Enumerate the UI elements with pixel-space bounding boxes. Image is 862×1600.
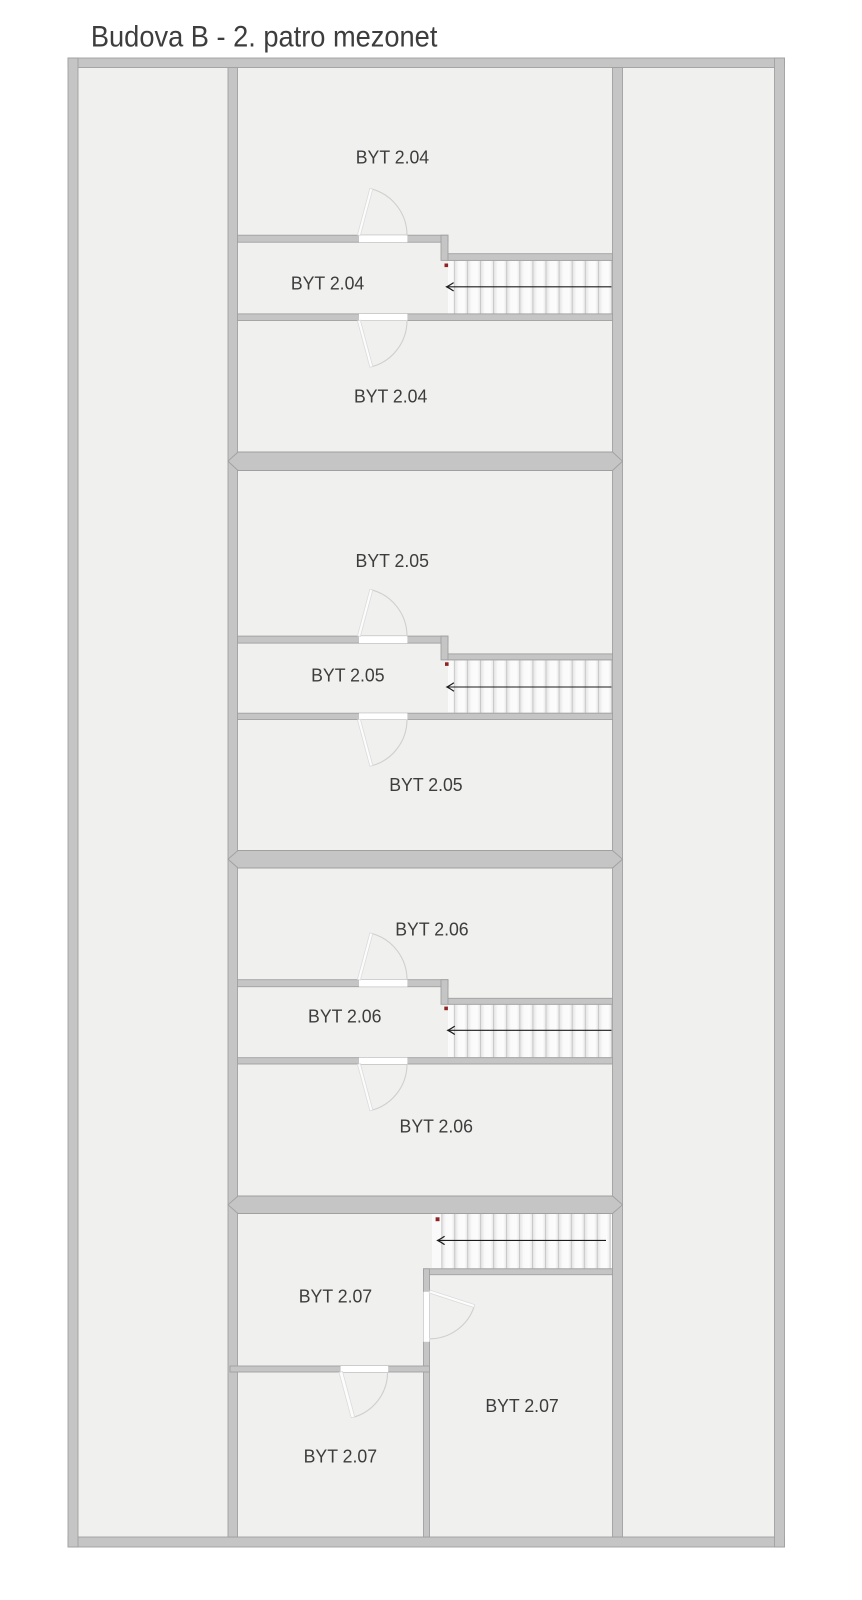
svg-text:BYT 2.04: BYT 2.04 xyxy=(291,274,364,294)
svg-text:BYT 2.07: BYT 2.07 xyxy=(304,1446,377,1466)
svg-text:BYT 2.06: BYT 2.06 xyxy=(395,920,468,940)
svg-text:BYT 2.04: BYT 2.04 xyxy=(354,386,427,406)
svg-text:BYT 2.06: BYT 2.06 xyxy=(308,1007,381,1027)
svg-text:Budova B - 2. patro mezonet: Budova B - 2. patro mezonet xyxy=(91,21,438,54)
svg-text:BYT 2.07: BYT 2.07 xyxy=(299,1286,372,1306)
svg-text:BYT 2.05: BYT 2.05 xyxy=(311,665,384,685)
svg-text:BYT 2.05: BYT 2.05 xyxy=(356,551,429,571)
svg-text:BYT 2.06: BYT 2.06 xyxy=(400,1116,473,1136)
svg-text:BYT 2.07: BYT 2.07 xyxy=(485,1396,558,1416)
svg-text:BYT 2.04: BYT 2.04 xyxy=(356,148,429,168)
svg-text:BYT 2.05: BYT 2.05 xyxy=(389,775,462,795)
